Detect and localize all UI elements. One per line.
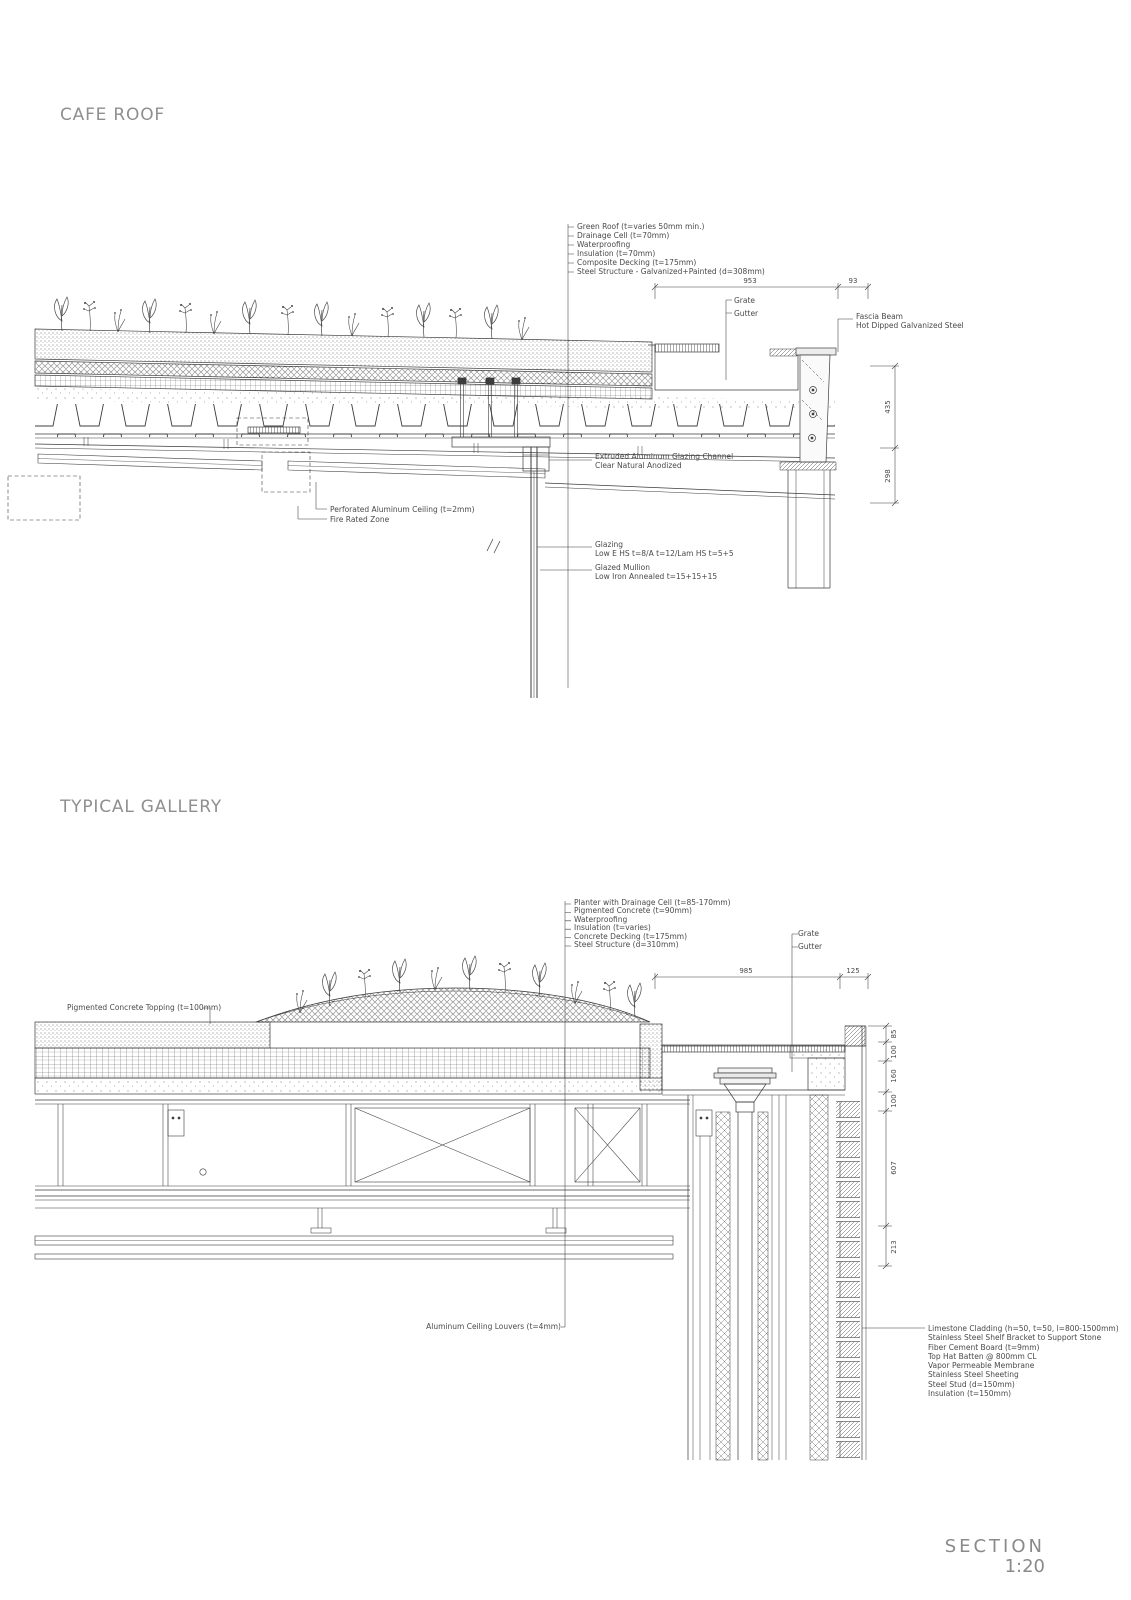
callout-drainage-cell: Drainage Cell (t=70mm): [577, 231, 765, 240]
gallery-planter-mound: [256, 988, 650, 1022]
dim-93: 93: [849, 277, 858, 285]
gallery-grate-label: Grate: [798, 929, 819, 938]
callout-vapor-membrane: Vapor Permeable Membrane: [928, 1361, 1119, 1370]
typical-gallery-title: TYPICAL GALLERY: [60, 797, 222, 817]
callout-waterproofing: Waterproofing: [577, 240, 765, 249]
callout-insulation-wall: Insulation (t=150mm): [928, 1389, 1119, 1398]
cafe-grate: [655, 344, 719, 352]
callout-green-roof: Green Roof (t=varies 50mm min.): [577, 222, 765, 231]
cafe-roof-title: CAFE ROOF: [60, 105, 165, 125]
cafe-mullion-label: Glazed Mullion Low Iron Annealed t=15+15…: [595, 563, 717, 581]
gallery-steel-structure: [35, 1100, 712, 1190]
gallery-facade-wall: [688, 1026, 866, 1460]
sheet-title-block: SECTION 1:20: [945, 1537, 1045, 1577]
glazing-label-line1: Glazing: [595, 540, 734, 549]
glazing-channel-line1: Extruded Aluminum Glazing Channel: [595, 452, 733, 461]
mullion-label-line2: Low Iron Annealed t=15+15+15: [595, 572, 717, 581]
callout-steel-structure-gal: Steel Structure (d=310mm): [574, 941, 731, 949]
dim-125: 125: [846, 967, 859, 975]
dim-100b: 100: [890, 1094, 898, 1107]
cafe-glazing-label: Glazing Low E HS t=8/A t=12/Lam HS t=5+5: [595, 540, 734, 558]
callout-steel-sheeting: Stainless Steel Sheeting: [928, 1370, 1119, 1379]
cafe-grate-label: Grate: [734, 296, 755, 305]
gallery-ceiling-louvers: [35, 1196, 690, 1259]
gallery-gutter-label: Gutter: [798, 942, 822, 951]
callout-shelf-bracket: Stainless Steel Shelf Bracket to Support…: [928, 1333, 1119, 1342]
dim-607: 607: [890, 1161, 898, 1174]
dim-953: 953: [743, 277, 756, 285]
gallery-tile-band: [35, 1048, 650, 1078]
typical-gallery-drawing: 985 125 85 100 160 100 607 213: [35, 901, 925, 1460]
gallery-wall-callouts: Limestone Cladding (h=50, t=50, l=800-15…: [928, 1324, 1119, 1398]
callout-steel-stud: Steel Stud (d=150mm): [928, 1380, 1119, 1389]
cafe-layer-callouts: Green Roof (t=varies 50mm min.) Drainage…: [577, 222, 765, 276]
fascia-label-line1: Fascia Beam: [856, 312, 964, 321]
glazing-label-line2: Low E HS t=8/A t=12/Lam HS t=5+5: [595, 549, 734, 558]
cafe-perforated-ceiling: [38, 454, 545, 478]
gallery-insulation-strip: [810, 1095, 828, 1460]
gallery-callout-leader: [561, 901, 571, 1327]
dim-100a: 100: [890, 1045, 898, 1058]
cafe-gutter-label: Gutter: [734, 309, 758, 318]
callout-composite-decking: Composite Decking (t=175mm): [577, 258, 765, 267]
gallery-limestone-cladding: [836, 1100, 860, 1458]
glazing-channel-line2: Clear Natural Anodized: [595, 461, 733, 470]
gallery-topping-label: Pigmented Concrete Topping (t=100mm): [67, 1003, 221, 1012]
callout-steel-structure: Steel Structure - Galvanized+Painted (d=…: [577, 267, 765, 276]
drawing-sheet: 953 93 435 298: [0, 0, 1131, 1600]
cafe-fascia-label: Fascia Beam Hot Dipped Galvanized Steel: [856, 312, 964, 330]
cafe-perforated-ceiling-label: Perforated Aluminum Ceiling (t=2mm): [330, 505, 475, 514]
dim-160: 160: [890, 1069, 898, 1082]
fascia-label-line2: Hot Dipped Galvanized Steel: [856, 321, 964, 330]
glass-symbol: [487, 539, 500, 553]
callout-top-hat-batten: Top Hat Batten @ 800mm CL: [928, 1352, 1119, 1361]
cafe-glazed-mullion: [531, 447, 537, 698]
cafe-roof-drawing: 953 93 435 298: [8, 224, 899, 698]
scale-label: 1:20: [945, 1557, 1045, 1577]
gallery-layer-callouts: Planter with Drainage Cell (t=85-170mm) …: [574, 899, 731, 949]
gallery-louvers-label: Aluminum Ceiling Louvers (t=4mm): [426, 1322, 561, 1331]
dim-435: 435: [884, 400, 892, 413]
cafe-fascia-beam: [770, 348, 836, 588]
callout-fiber-cement-board: Fiber Cement Board (t=9mm): [928, 1343, 1119, 1352]
gallery-concrete-topping: [35, 1022, 270, 1048]
dim-85: 85: [890, 1030, 898, 1039]
cafe-glazing-channel-label: Extruded Aluminum Glazing Channel Clear …: [595, 452, 733, 470]
callout-limestone-cladding: Limestone Cladding (h=50, t=50, l=800-15…: [928, 1324, 1119, 1333]
gallery-dimensions: 985 125 85 100 160 100 607 213: [652, 967, 898, 1269]
cafe-fire-rated-label: Fire Rated Zone: [330, 515, 389, 524]
dim-298: 298: [884, 469, 892, 482]
cafe-composite-decking: [35, 404, 835, 438]
callout-insulation: Insulation (t=70mm): [577, 249, 765, 258]
section-label: SECTION: [945, 1537, 1045, 1557]
dim-985: 985: [739, 967, 752, 975]
cafe-callout-leader: [568, 224, 574, 688]
mullion-label-line1: Glazed Mullion: [595, 563, 717, 572]
dim-213: 213: [890, 1240, 898, 1253]
